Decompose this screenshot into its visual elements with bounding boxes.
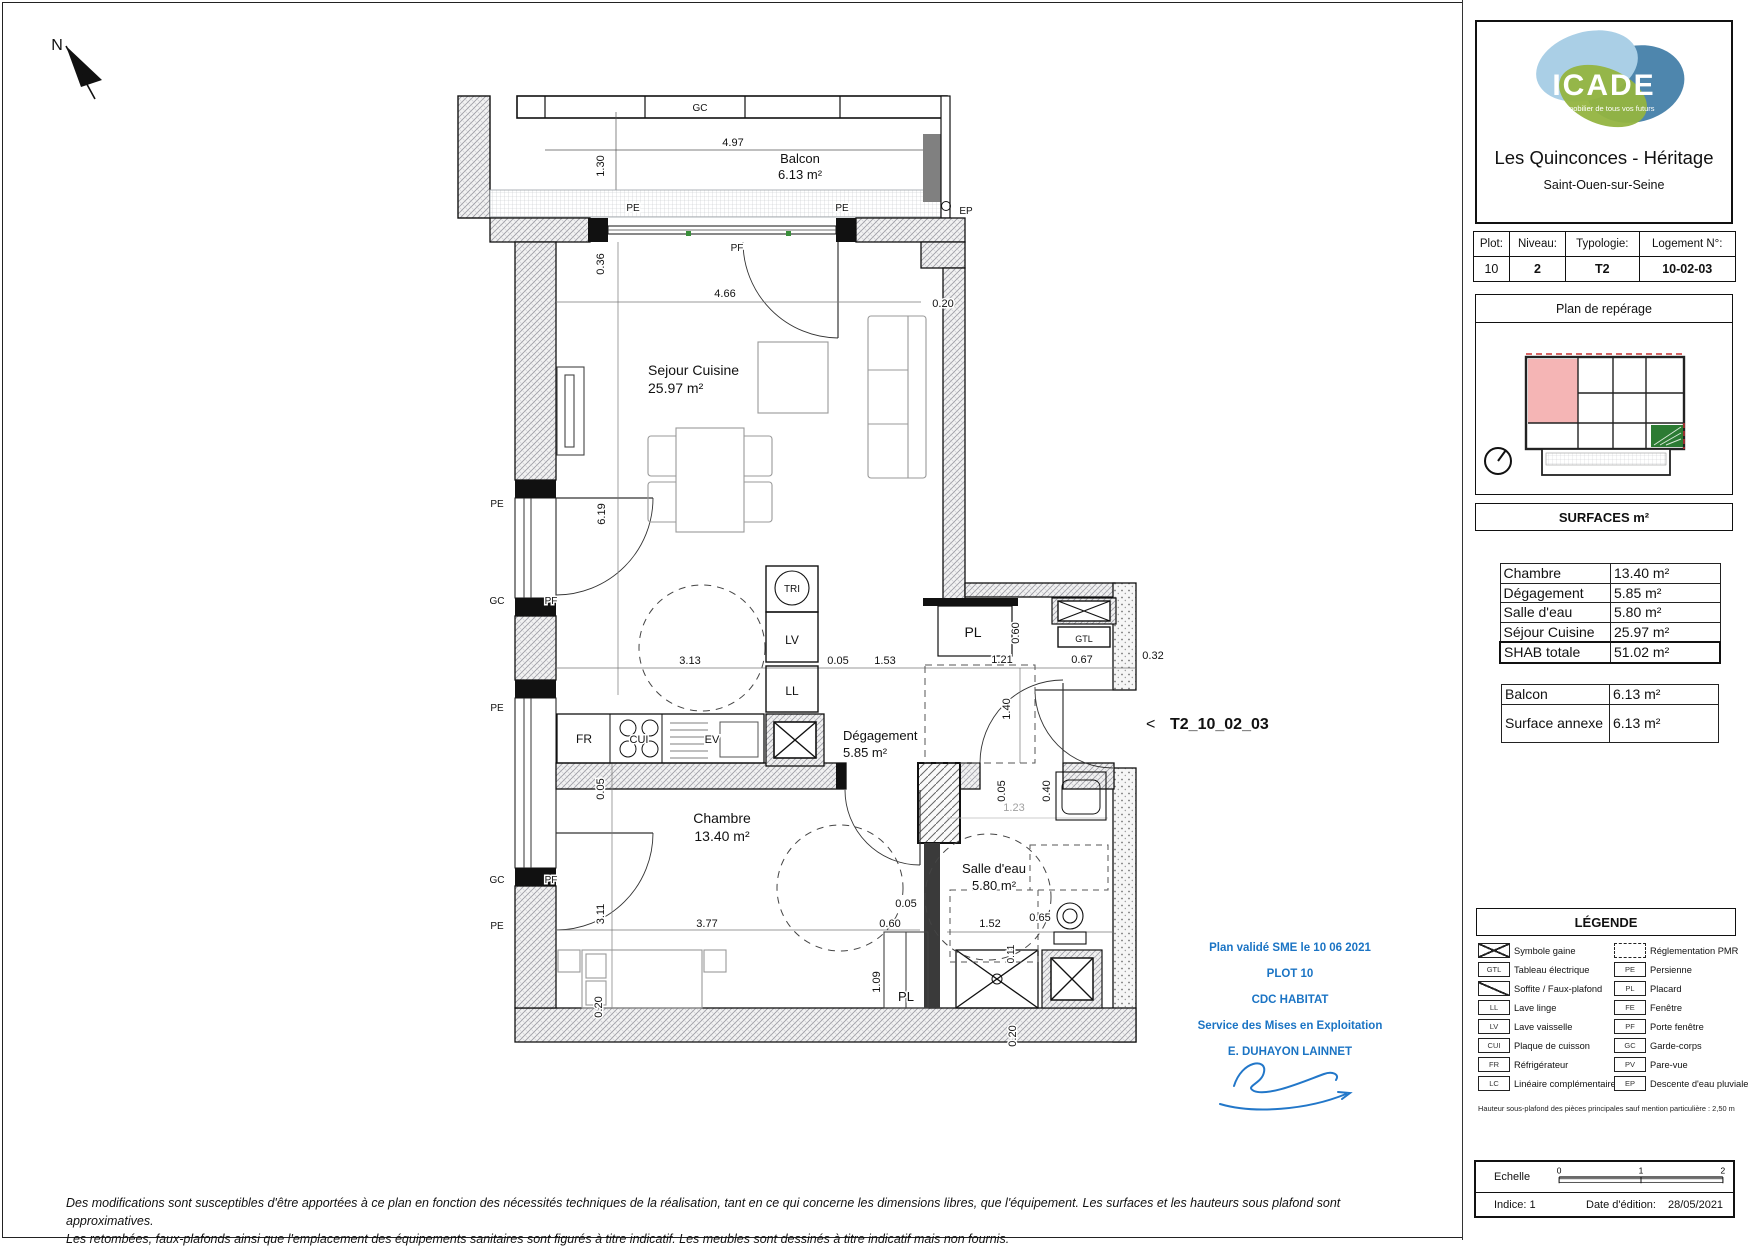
plan-label: 1.53 — [874, 655, 895, 667]
legend-item: CUIPlaque de cuisson — [1478, 1038, 1614, 1053]
total-area: 51.02 m² — [1611, 642, 1721, 663]
cui-legend-icon: CUI — [1478, 1038, 1510, 1053]
plan-label: < — [1146, 716, 1155, 733]
pare-vue — [923, 134, 942, 202]
plan-label: 0.60 — [1010, 622, 1022, 643]
plan-label: GTL — [1075, 634, 1093, 644]
radiator — [557, 367, 584, 455]
col-header: Niveau: — [1509, 232, 1565, 257]
gtl-legend-icon: GTL — [1478, 962, 1510, 977]
room-label: Salle d'eau — [1500, 603, 1611, 623]
legend-item: PLPlacard — [1614, 981, 1682, 996]
legend-label: Symbole gaine — [1514, 946, 1576, 956]
legend-label: Placard — [1650, 984, 1682, 994]
legend-item: PEPersienne — [1614, 962, 1692, 977]
sofa — [868, 316, 926, 478]
signature — [1212, 1052, 1372, 1122]
room-label: Surface annexe — [1502, 704, 1610, 742]
plan-label: EV — [705, 734, 720, 746]
fr-legend-icon: FR — [1478, 1057, 1510, 1072]
guardrail — [517, 96, 947, 118]
room-area: 6.13 m² — [1610, 704, 1719, 742]
pmr-zone — [925, 665, 1035, 763]
plan-label: 0.05 — [996, 780, 1008, 801]
legend-item: PVPare-vue — [1614, 1057, 1688, 1072]
plan-label: 3.13 — [679, 655, 700, 667]
scale-card: Echelle 0 1 2 Indice: 1 Date d'édition: … — [1474, 1160, 1735, 1218]
plan-label: PL — [898, 989, 914, 1004]
legend-label: Porte fenêtre — [1650, 1022, 1704, 1032]
plan-label: 4.66 — [714, 288, 735, 300]
fe-legend-icon: FE — [1614, 1000, 1646, 1015]
plan-label: 25.97 m² — [648, 380, 704, 396]
plan-label: Dégagement — [843, 728, 918, 743]
plan-label: 0.05 — [827, 655, 848, 667]
unit-number-value: 10-02-03 — [1639, 257, 1736, 282]
nightstand — [704, 950, 726, 972]
legend-label: Plaque de cuisson — [1514, 1041, 1590, 1051]
surfaces-table: Chambre 13.40 m² Dégagement 5.85 m² Sall… — [1499, 563, 1721, 664]
toilet — [1054, 903, 1086, 944]
legend-label: Persienne — [1650, 965, 1692, 975]
pl-legend-icon: PL — [1614, 981, 1646, 996]
plan-label: Chambre — [693, 810, 751, 826]
plan-label: CUI — [630, 734, 649, 746]
disclaimer-line: Des modifications sont susceptibles d'êt… — [66, 1194, 1396, 1230]
north-arrow-icon — [66, 46, 102, 99]
legend-row: CUIPlaque de cuissonGCGarde-corps — [1478, 1038, 1752, 1053]
plan-label: 0.20 — [932, 298, 953, 310]
legend-item: LVLave vaisselle — [1478, 1019, 1614, 1034]
type-value: T2 — [1566, 257, 1639, 282]
plan-label: 0.65 — [1029, 912, 1050, 924]
validation-line: Service des Mises en Exploitation — [1150, 1020, 1430, 1032]
plan-label: N — [51, 37, 63, 54]
plan-label: 0.36 — [595, 253, 607, 274]
legend-item: LCLinéaire complémentaire — [1478, 1076, 1614, 1091]
dimension-lines — [556, 242, 1136, 1008]
legend-label: Lave vaisselle — [1514, 1022, 1572, 1032]
edition-date-value: 28/05/2021 — [1668, 1199, 1723, 1211]
plan-label: T2_10_02_03 — [1170, 716, 1269, 733]
plan-label: 5.85 m² — [843, 745, 888, 760]
legend-row: Symbole gaineRéglementation PMR — [1478, 943, 1752, 958]
plan-label: 0.05 — [595, 778, 607, 799]
legend-row: LLLave lingeFEFenêtre — [1478, 1000, 1752, 1015]
legend-label: Pare-vue — [1650, 1060, 1688, 1070]
title-block-panel: ICADE L'immobilier de tous vos futurs Le… — [1462, 0, 1755, 1240]
disclaimer-line: Les retombées, faux-plafonds ainsi que l… — [66, 1230, 1396, 1248]
legend-item: LLLave linge — [1478, 1000, 1614, 1015]
sink — [720, 722, 758, 757]
pmr-zone — [1030, 845, 1108, 890]
nightstand — [558, 950, 580, 972]
plan-label: 0.60 — [879, 918, 900, 930]
shower — [956, 950, 1038, 1008]
icade-logo: ICADE L'immobilier de tous vos futurs — [1477, 22, 1731, 134]
room-area: 13.40 m² — [1611, 564, 1721, 584]
plan-label: 1.09 — [871, 971, 883, 992]
total-label: SHAB totale — [1500, 642, 1611, 663]
legend-label: Tableau électrique — [1514, 965, 1589, 975]
edition-date-label: Date d'édition: — [1586, 1199, 1668, 1211]
plan-label: 0.67 — [1071, 654, 1092, 666]
ep-legend-icon: EP — [1614, 1076, 1646, 1091]
legend-item: GCGarde-corps — [1614, 1038, 1702, 1053]
pe-legend-icon: PE — [1614, 962, 1646, 977]
plan-label: 6.13 m² — [778, 167, 823, 182]
legend-label: Réfrigérateur — [1514, 1060, 1568, 1070]
plan-label: 0.20 — [593, 996, 605, 1017]
legend-note: Hauteur sous-plafond des pièces principa… — [1478, 1104, 1748, 1113]
legend-row: LCLinéaire complémentaireEPDescente d'ea… — [1478, 1076, 1752, 1091]
plan-label: LL — [785, 684, 799, 698]
legend-label: Réglementation PMR — [1650, 946, 1738, 956]
room-label: Chambre — [1500, 564, 1611, 584]
room-area: 5.85 m² — [1611, 583, 1721, 603]
plan-label: 3.11 — [595, 904, 607, 925]
soffite-legend-icon — [1478, 981, 1510, 996]
plan-label: 6.19 — [596, 503, 608, 524]
location-map-title: Plan de repérage — [1476, 295, 1732, 323]
legend-item: Symbole gaine — [1478, 943, 1614, 958]
validation-line: CDC HABITAT — [1150, 994, 1430, 1006]
legend-label: Descente d'eau pluviale — [1650, 1079, 1748, 1089]
unit-id-table: Plot: Niveau: Typologie: Logement N°: 10… — [1473, 231, 1736, 282]
lv-legend-icon: LV — [1478, 1019, 1510, 1034]
plan-label: 1.30 — [595, 155, 607, 176]
ll-legend-icon: LL — [1478, 1000, 1510, 1015]
table-row: Surface annexe 6.13 m² — [1502, 704, 1719, 742]
plan-label: 1.52 — [979, 918, 1000, 930]
pillow — [586, 954, 606, 978]
plan-label: PE — [626, 203, 640, 214]
scale-tick: 2 — [1721, 1165, 1726, 1175]
project-city: Saint-Ouen-sur-Seine — [1477, 178, 1731, 192]
plan-label: PF — [731, 243, 744, 254]
plan-label: 3.77 — [696, 918, 717, 930]
col-header: Typologie: — [1566, 232, 1639, 257]
scale-tick: 0 — [1557, 1165, 1562, 1175]
level-value: 2 — [1509, 257, 1565, 282]
plan-label: GC — [693, 103, 708, 114]
scale-label: Echelle — [1494, 1171, 1552, 1183]
plan-label: 0.40 — [1041, 780, 1053, 801]
annex-table: Balcon 6.13 m² Surface annexe 6.13 m² — [1501, 684, 1719, 743]
legend-items: Symbole gaineRéglementation PMRGTLTablea… — [1478, 943, 1752, 1095]
room-area: 5.80 m² — [1611, 603, 1721, 623]
plan-label: PE — [490, 921, 504, 932]
room-label: Balcon — [1502, 685, 1610, 705]
plan-label: 4.97 — [722, 137, 743, 149]
plan-label: PE — [490, 703, 504, 714]
balcony-paving — [490, 190, 947, 217]
brand-text: ICADE — [1552, 69, 1655, 102]
plan-labels: NGC4.97Balcon6.13 m²1.30PEPEEPPF0.364.66… — [51, 37, 1269, 1047]
living-furniture — [557, 316, 926, 532]
plot-value: 10 — [1474, 257, 1510, 282]
bedroom-furniture — [558, 932, 928, 1008]
plan-label: 13.40 m² — [694, 828, 750, 844]
legend-item: GTLTableau électrique — [1478, 962, 1614, 977]
legend-label: Soffite / Faux-plafond — [1514, 984, 1602, 994]
plan-label: 5.80 m² — [972, 878, 1017, 893]
plan-label: 1.21 — [991, 654, 1012, 666]
legend-item: PFPorte fenêtre — [1614, 1019, 1704, 1034]
validation-line: PLOT 10 — [1150, 968, 1430, 980]
plan-label: Salle d'eau — [962, 861, 1026, 876]
legend-item: Soffite / Faux-plafond — [1478, 981, 1614, 996]
legend-row: LVLave vaissellePFPorte fenêtre — [1478, 1019, 1752, 1034]
location-mini-map — [1476, 323, 1732, 493]
plan-label: 1.40 — [1001, 698, 1013, 719]
col-header: Logement N°: — [1639, 232, 1736, 257]
legend-item: FRRéfrigérateur — [1478, 1057, 1614, 1072]
plan-label: PF — [545, 875, 558, 886]
pv-legend-icon: PV — [1614, 1057, 1646, 1072]
table-row: Dégagement 5.85 m² — [1500, 583, 1720, 603]
legend-title: LÉGENDE — [1476, 908, 1736, 936]
plan-label: GC — [490, 875, 505, 886]
legend-row: Soffite / Faux-plafondPLPlacard — [1478, 981, 1752, 996]
plan-label: EP — [959, 206, 973, 217]
plan-label: PE — [490, 499, 504, 510]
surfaces-header: SURFACES m² — [1475, 503, 1733, 531]
plan-label: 1.23 — [1003, 802, 1024, 814]
brand-tagline: L'immobilier de tous vos futurs — [1553, 104, 1654, 113]
gc-legend-icon: GC — [1614, 1038, 1646, 1053]
location-map-card: Plan de repérage — [1475, 294, 1733, 495]
plan-label: PL — [964, 624, 981, 640]
legend-row: FRRéfrigérateurPVPare-vue — [1478, 1057, 1752, 1072]
highlighted-unit — [1528, 359, 1578, 423]
scale-bar: 0 1 2 — [1552, 1164, 1730, 1190]
validation-line: Plan validé SME le 10 06 2021 — [1150, 942, 1430, 954]
plan-label: 0.11 — [1006, 944, 1017, 963]
room-area: 6.13 m² — [1610, 685, 1719, 705]
legend-item: Réglementation PMR — [1614, 943, 1738, 958]
project-card: ICADE L'immobilier de tous vos futurs Le… — [1475, 20, 1733, 224]
table-row-total: SHAB totale 51.02 m² — [1500, 642, 1720, 663]
plan-label: GC — [490, 596, 505, 607]
table-row: Chambre 13.40 m² — [1500, 564, 1720, 584]
dining-table — [676, 428, 744, 532]
scale-tick: 1 — [1639, 1165, 1644, 1175]
legend-item: EPDescente d'eau pluviale — [1614, 1076, 1748, 1091]
legend-label: Lave linge — [1514, 1003, 1556, 1013]
plan-label: 0.05 — [895, 898, 916, 910]
project-title: Les Quinconces - Héritage — [1477, 147, 1731, 169]
legend-row: GTLTableau électriquePEPersienne — [1478, 962, 1752, 977]
plan-label: LV — [785, 633, 799, 647]
legend-item: FEFenêtre — [1614, 1000, 1682, 1015]
pf-legend-icon: PF — [1614, 1019, 1646, 1034]
balcony — [458, 96, 951, 218]
coffee-table — [758, 342, 828, 413]
plan-label: PF — [545, 596, 558, 607]
lc-legend-icon: LC — [1478, 1076, 1510, 1091]
soffite — [918, 763, 960, 843]
legend-label: Linéaire complémentaire — [1514, 1079, 1616, 1089]
plan-label: Balcon — [780, 151, 820, 166]
plan-label: 0.20 — [1007, 1025, 1019, 1046]
col-header: Plot: — [1474, 232, 1510, 257]
pmr-legend-icon — [1614, 943, 1646, 958]
room-label: Séjour Cuisine — [1500, 622, 1611, 642]
plan-label: PE — [835, 203, 849, 214]
room-label: Dégagement — [1500, 583, 1611, 603]
gaine-legend-icon — [1478, 943, 1510, 958]
plan-label: 0.32 — [1142, 650, 1163, 662]
legend-label: Garde-corps — [1650, 1041, 1702, 1051]
plan-label: FR — [576, 732, 592, 746]
table-row: Séjour Cuisine 25.97 m² — [1500, 622, 1720, 642]
table-row: Salle d'eau 5.80 m² — [1500, 603, 1720, 623]
plan-label: TRI — [784, 584, 800, 595]
revision-index: Indice: 1 — [1494, 1199, 1586, 1211]
room-area: 25.97 m² — [1611, 622, 1721, 642]
table-row: Balcon 6.13 m² — [1502, 685, 1719, 705]
legend-label: Fenêtre — [1650, 1003, 1682, 1013]
plan-label: Sejour Cuisine — [648, 362, 739, 378]
